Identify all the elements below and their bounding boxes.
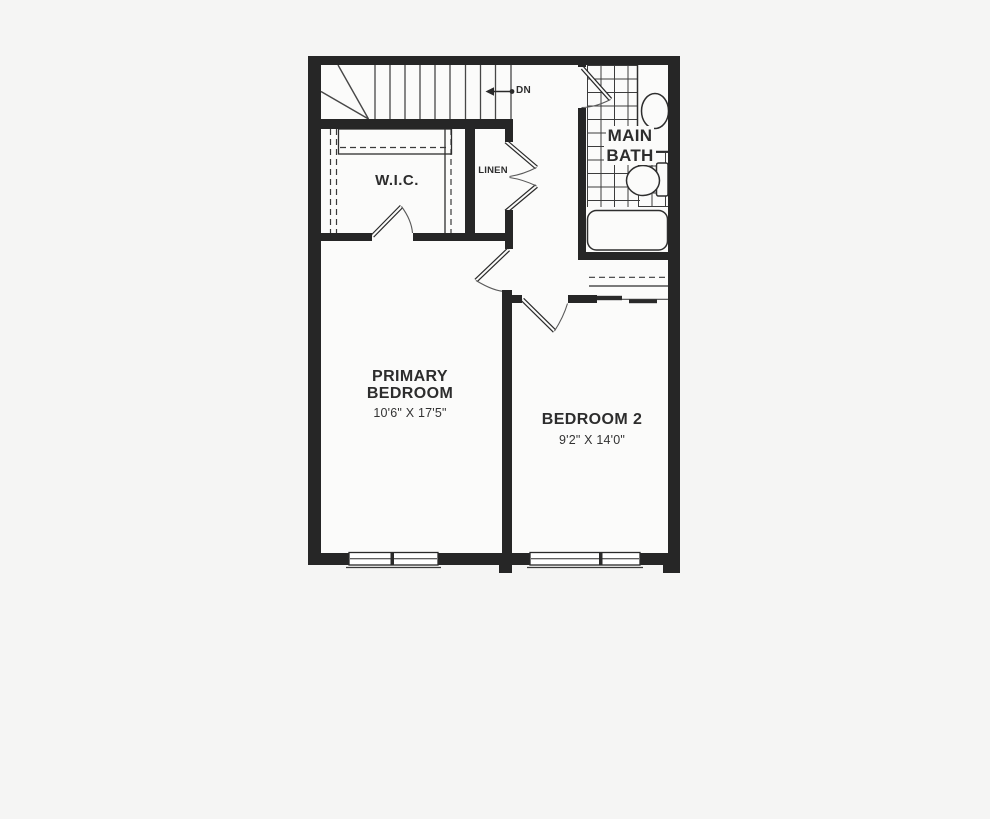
primary-bedroom-name-line1: PRIMARY — [372, 368, 448, 385]
primary-bedroom-name-line2: BEDROOM — [367, 385, 453, 402]
bedroom2-dimensions: 9'2" X 14'0" — [507, 433, 677, 447]
main-bath-label-line2: BATH — [604, 146, 655, 166]
main-bath-label: MAIN BATH — [584, 126, 676, 165]
bathtub-icon — [588, 211, 668, 251]
primary-bedroom-dimensions: 10'6" X 17'5" — [325, 406, 495, 420]
bedroom2-window — [527, 553, 643, 568]
main-bath-label-line1: MAIN — [606, 126, 655, 146]
primary-bedroom-door — [476, 250, 509, 292]
stairs-dn-label: DN — [516, 85, 546, 96]
wic-door — [373, 207, 413, 237]
toilet-icon — [627, 163, 669, 196]
bedroom2-label: BEDROOM 2 9'2" X 14'0" — [507, 412, 677, 447]
bathroom-door — [582, 68, 611, 108]
floorplan-drawing — [0, 0, 990, 819]
primary-bedroom-label: PRIMARY BEDROOM 10'6" X 17'5" — [325, 369, 495, 420]
bedroom2-closet-shelving — [589, 277, 668, 286]
linen-label: LINEN — [462, 165, 524, 176]
bedroom2-closet-sliding-doors — [597, 296, 668, 303]
bedroom2-door — [523, 300, 568, 332]
wic-label: W.I.C. — [332, 172, 462, 189]
floorplan-canvas: DN W.I.C. LINEN MAIN BATH PRIMARY BEDROO… — [0, 0, 990, 819]
staircase — [321, 65, 511, 119]
stairs-down-arrow-icon — [486, 87, 515, 95]
bedroom2-name: BEDROOM 2 — [507, 412, 677, 429]
sink-icon — [642, 94, 669, 129]
linen-double-doors — [506, 142, 537, 212]
primary-bedroom-window — [346, 553, 441, 568]
